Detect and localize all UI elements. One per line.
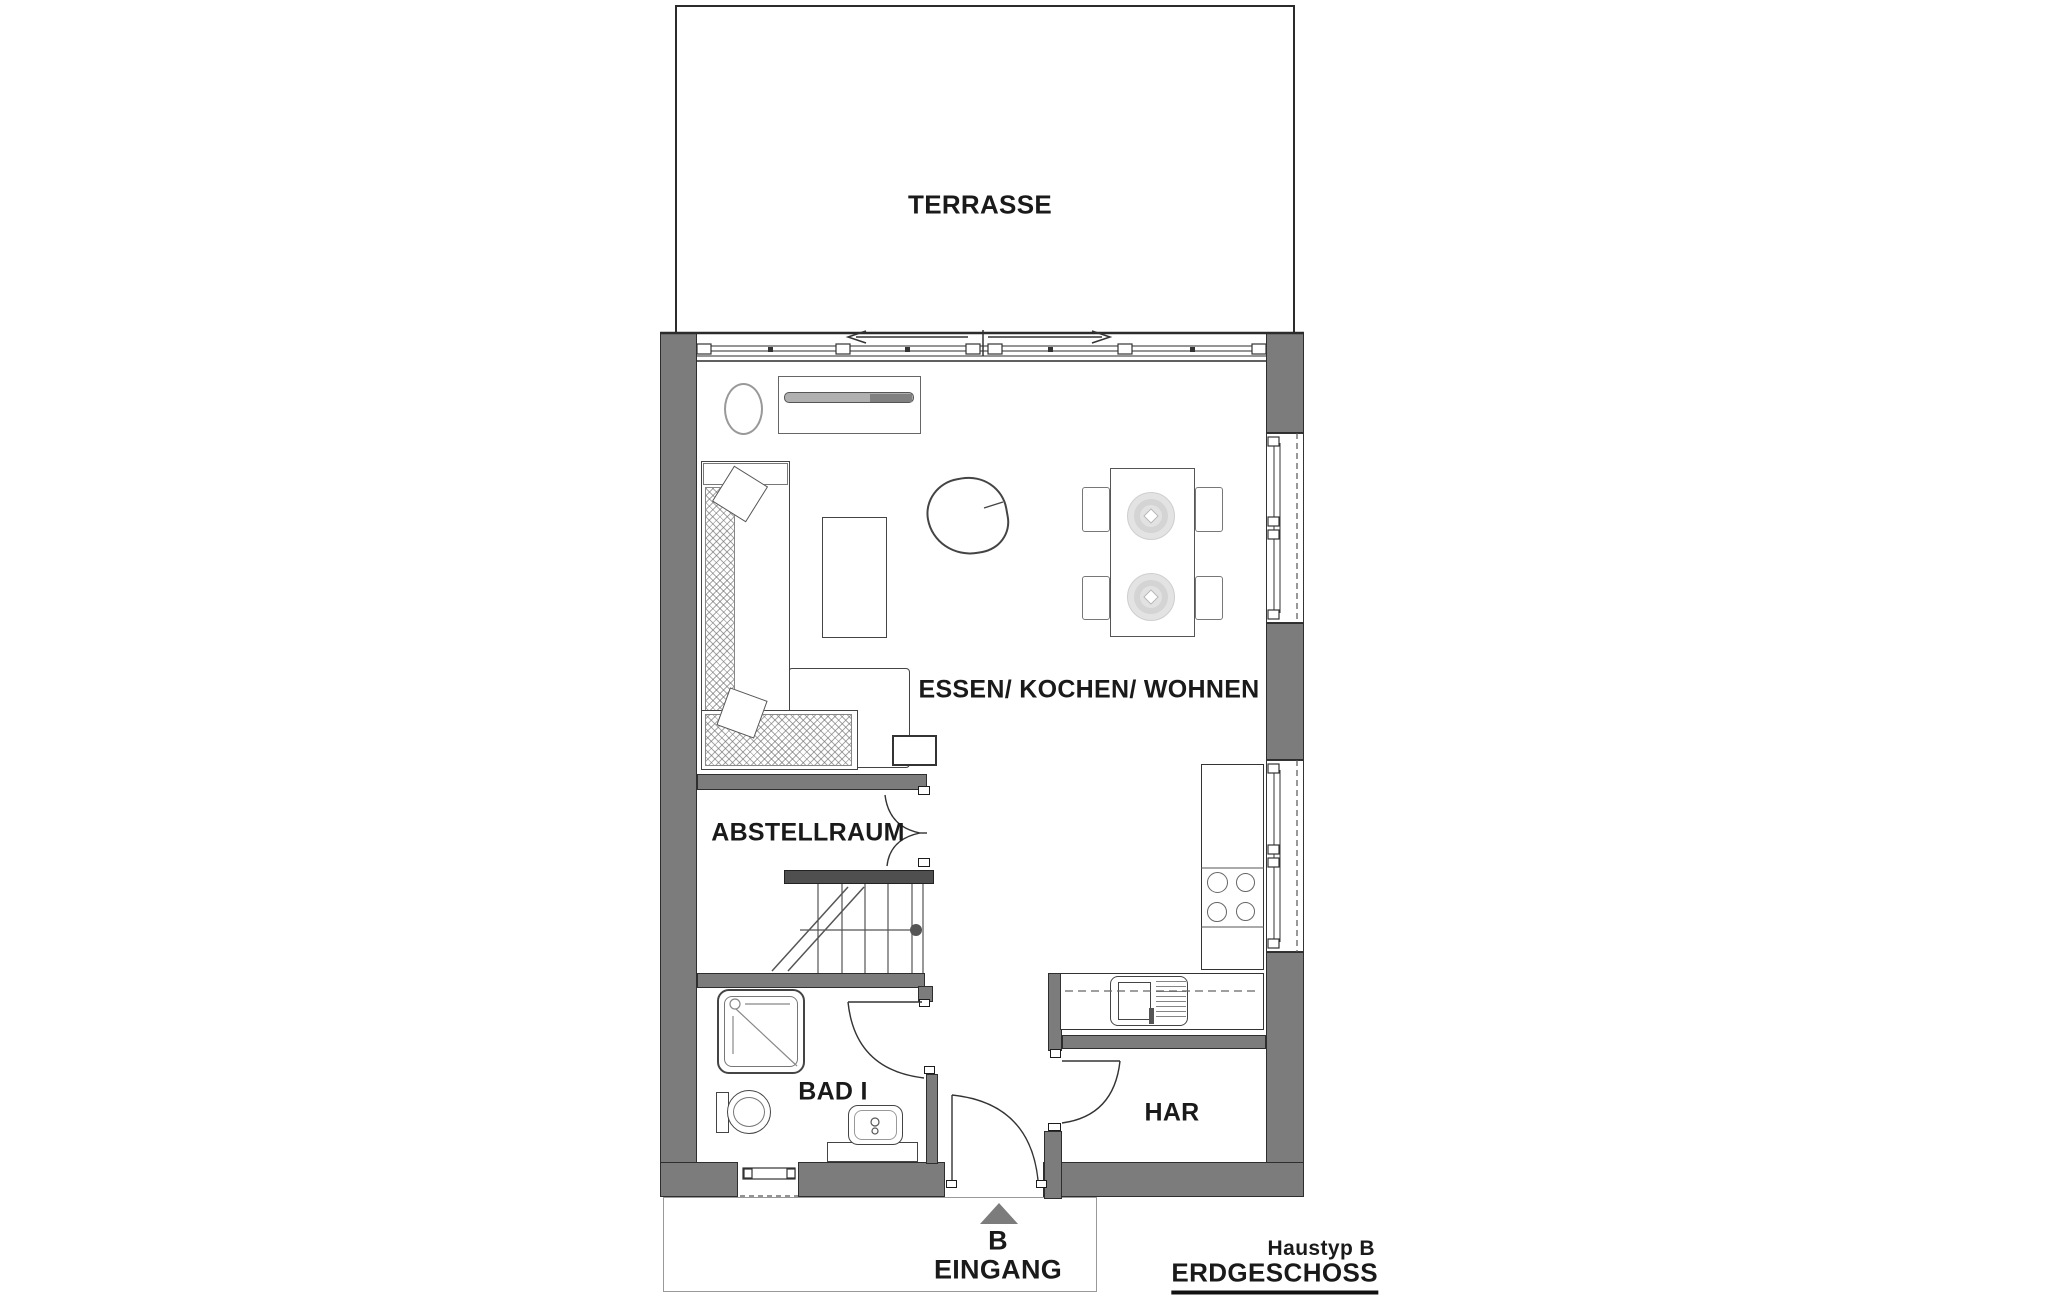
kitchen-counter-vertical bbox=[1201, 764, 1264, 970]
door-jamb bbox=[1048, 1123, 1061, 1131]
wall-har-top bbox=[1062, 1035, 1266, 1049]
dining-chair bbox=[1082, 487, 1110, 532]
room-label-har: HAR bbox=[1144, 1099, 1199, 1128]
entrance-arrow-icon bbox=[980, 1203, 1018, 1224]
dining-chair bbox=[1082, 576, 1110, 620]
wall-bottom-c bbox=[1043, 1162, 1304, 1197]
stove-burner bbox=[1236, 902, 1255, 921]
door-jamb bbox=[919, 999, 930, 1007]
stairs bbox=[772, 884, 923, 973]
tv-base bbox=[870, 394, 912, 402]
sliding-arrow-icon bbox=[848, 331, 1110, 343]
door-entrance bbox=[952, 1095, 1038, 1180]
window-kitchen-right bbox=[1266, 760, 1304, 952]
titleblock-floor: ERDGESCHOSS bbox=[1171, 1258, 1378, 1295]
floorplan-canvas: TERRASSE ESSEN/ KOCHEN/ WOHNEN ABSTELLRA… bbox=[0, 0, 2048, 1303]
plate bbox=[1127, 573, 1175, 621]
dining-chair bbox=[1195, 576, 1223, 620]
stove-burner bbox=[1236, 873, 1255, 892]
armchair bbox=[921, 471, 1014, 562]
sink-basin bbox=[1118, 982, 1151, 1020]
wall-bad-right-stub bbox=[926, 1074, 938, 1164]
wall-bad-top bbox=[697, 973, 925, 988]
plate bbox=[1127, 492, 1175, 540]
dining-chair bbox=[1195, 487, 1223, 532]
door-jamb bbox=[1036, 1180, 1047, 1188]
wall-abstellraum-top bbox=[697, 774, 927, 790]
side-table bbox=[892, 735, 937, 766]
stair-newel-dot bbox=[910, 924, 922, 936]
wall-har-left-stub bbox=[1044, 1131, 1062, 1199]
sideboard bbox=[778, 376, 921, 434]
terrace-outline bbox=[675, 5, 1295, 332]
door-jamb bbox=[918, 858, 930, 867]
plate-center bbox=[1143, 508, 1159, 524]
door-jamb bbox=[924, 1066, 935, 1074]
window-bad-bottom bbox=[738, 1162, 798, 1197]
wall-bottom-a bbox=[660, 1162, 738, 1197]
plate-center bbox=[1143, 589, 1159, 605]
room-label-bad: BAD I bbox=[798, 1078, 868, 1107]
vanity-basin-inner bbox=[854, 1110, 897, 1140]
door-jamb bbox=[946, 1180, 957, 1188]
sink-faucet bbox=[1149, 1008, 1154, 1024]
wall-right-bottom bbox=[1266, 952, 1304, 1197]
door-jamb bbox=[918, 786, 930, 795]
coffee-table bbox=[822, 517, 887, 638]
entrance-label: EINGANG bbox=[934, 1255, 1062, 1286]
door-jamb bbox=[1050, 1049, 1061, 1058]
stove-burner bbox=[1207, 902, 1227, 922]
stove-burner bbox=[1207, 872, 1228, 893]
entrance-marker-label: B bbox=[988, 1226, 1008, 1257]
door-har bbox=[1062, 1061, 1120, 1123]
stair-guard-wall bbox=[784, 870, 934, 884]
room-label-abstellraum: ABSTELLRAUM bbox=[711, 819, 905, 848]
vanity-counter bbox=[827, 1142, 918, 1162]
room-label-wohnen: ESSEN/ KOCHEN/ WOHNEN bbox=[918, 676, 1259, 705]
door-bad bbox=[848, 1002, 924, 1078]
sink-drainer bbox=[1156, 981, 1186, 1021]
room-label-terrasse: TERRASSE bbox=[908, 190, 1052, 221]
wc-bowl-inner bbox=[733, 1097, 765, 1127]
wall-left bbox=[660, 332, 697, 1197]
wall-bottom-b bbox=[798, 1162, 945, 1197]
shower-inner bbox=[724, 996, 798, 1067]
wall-right-top bbox=[1266, 332, 1304, 433]
wall-right-mid bbox=[1266, 623, 1304, 760]
window-living-right bbox=[1266, 433, 1304, 623]
plant-icon bbox=[724, 383, 763, 435]
sliding-glass-wall bbox=[660, 330, 1304, 361]
